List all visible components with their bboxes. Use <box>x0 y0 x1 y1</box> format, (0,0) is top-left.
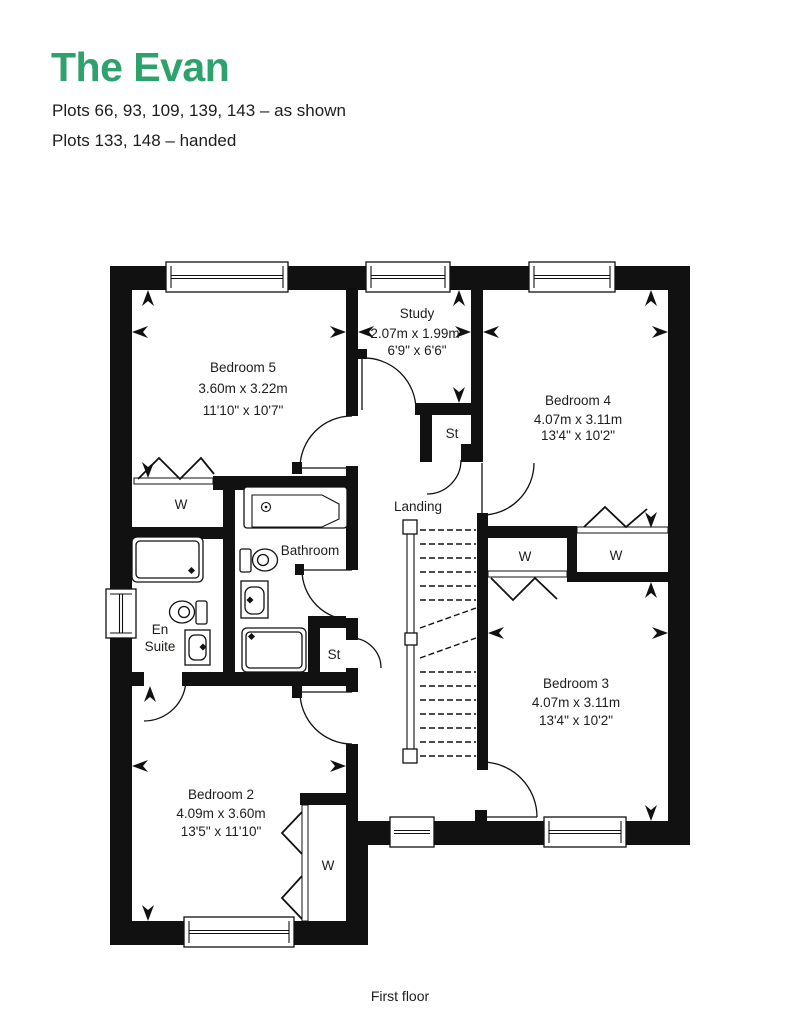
wardrobe-label-bedroom3: W <box>519 549 532 564</box>
wardrobe-label-bedroom4: W <box>610 548 623 563</box>
room-label-bedroom4: Bedroom 4 <box>545 393 612 408</box>
dim-imperial-bedroom3: 13'4" x 10'2" <box>539 713 613 728</box>
wardrobe-label-bedroom2: W <box>322 858 335 873</box>
room-label-bedroom2: Bedroom 2 <box>188 787 254 802</box>
window-bedroom2 <box>184 917 294 947</box>
window-bedroom4 <box>529 262 615 292</box>
dim-imperial-study: 6'9" x 6'6" <box>387 343 446 358</box>
bath-icon <box>244 487 347 528</box>
dim-imperial-bedroom2: 13'5" x 11'10" <box>181 824 262 839</box>
window-study <box>366 262 450 292</box>
dim-metric-bedroom2: 4.09m x 3.60m <box>176 806 265 821</box>
door-bedroom4 <box>482 463 534 515</box>
toilet-bathroom-icon <box>240 549 278 572</box>
dim-metric-study: 2.07m x 1.99m <box>370 326 459 341</box>
dim-imperial-bedroom5: 11'10" x 10'7" <box>203 403 284 418</box>
door-store-landing <box>427 460 461 494</box>
room-label-bathroom: Bathroom <box>281 543 340 558</box>
floor-plan: Bedroom 5 3.60m x 3.22m 11'10" x 10'7" S… <box>0 0 800 1036</box>
door-bedroom5 <box>292 416 352 474</box>
dim-imperial-bedroom4: 13'4" x 10'2" <box>541 428 615 443</box>
store-label-landing: St <box>446 426 459 441</box>
room-label-study: Study <box>400 306 435 321</box>
wardrobe-label-bedroom5: W <box>175 497 188 512</box>
stair-rail <box>403 520 417 763</box>
door-store-bathroom <box>351 638 381 668</box>
window-bedroom3 <box>544 817 626 847</box>
stair-treads <box>420 530 476 756</box>
door-bathroom <box>295 564 352 620</box>
dim-metric-bedroom3: 4.07m x 3.11m <box>532 695 620 710</box>
window-bedroom5 <box>166 262 288 292</box>
room-label-landing: Landing <box>394 499 442 514</box>
shower-ensuite-icon <box>132 537 203 582</box>
shower-bathroom-icon <box>242 628 306 672</box>
door-study <box>356 349 416 410</box>
window-landing <box>390 817 434 847</box>
wardrobe-bedroom4 <box>577 507 668 533</box>
room-label-ensuite-line1: En <box>152 622 169 637</box>
window-ensuite <box>106 589 136 638</box>
toilet-ensuite-icon <box>170 601 208 624</box>
store-label-bathroom: St <box>328 647 341 662</box>
wardrobe-bedroom2 <box>282 805 308 921</box>
basin-ensuite-icon <box>185 630 210 665</box>
floor-caption: First floor <box>371 988 430 1004</box>
door-bedroom3 <box>482 762 537 817</box>
staircase <box>403 520 476 763</box>
wardrobe-bedroom3 <box>488 571 567 600</box>
room-label-bedroom3: Bedroom 3 <box>543 676 609 691</box>
brochure-page: The Evan Plots 66, 93, 109, 139, 143 – a… <box>0 0 800 1036</box>
door-ensuite <box>144 679 186 721</box>
dim-metric-bedroom5: 3.60m x 3.22m <box>198 381 287 396</box>
room-label-ensuite-line2: Suite <box>145 639 176 654</box>
room-label-bedroom5: Bedroom 5 <box>210 360 276 375</box>
door-bedroom2 <box>292 686 352 744</box>
dim-metric-bedroom4: 4.07m x 3.11m <box>534 412 622 427</box>
basin-bathroom-icon <box>241 581 268 618</box>
